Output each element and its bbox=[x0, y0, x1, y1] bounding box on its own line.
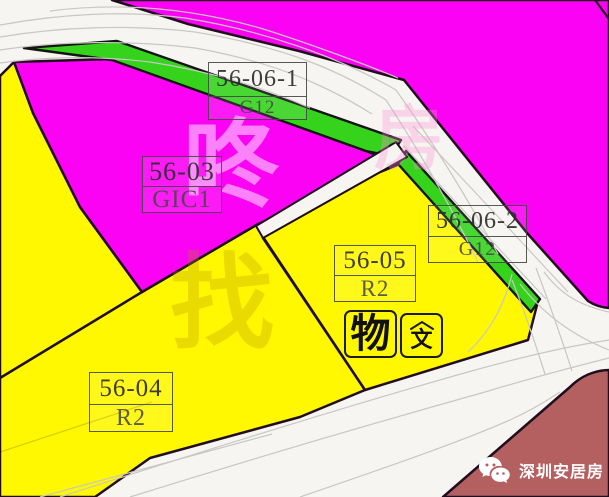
parcel-code: 56-04 bbox=[90, 373, 172, 405]
parcel-code: 56-05 bbox=[335, 246, 415, 276]
parcel-use: G12 bbox=[209, 97, 306, 119]
parcel-label-56-05: 56-05 R2 bbox=[334, 245, 416, 302]
brand-footer: 深圳安居房 bbox=[478, 452, 604, 488]
brand-name: 深圳安居房 bbox=[519, 458, 604, 482]
parcel-label-56-03: 56-03 GIC1 bbox=[142, 156, 222, 213]
parcel-use: R2 bbox=[335, 276, 415, 301]
parcel-code: 56-06-2 bbox=[429, 206, 526, 237]
parcel-code: 56-03 bbox=[143, 157, 221, 187]
landmark-wen-glyph: 文 bbox=[410, 329, 432, 351]
parcel-use: GIC1 bbox=[143, 187, 221, 212]
parcel-code: 56-06-1 bbox=[209, 63, 306, 97]
parcel-label-56-04: 56-04 R2 bbox=[89, 372, 173, 432]
landmark-wu-box: 物 bbox=[344, 310, 397, 358]
zoning-map: 咚 找 房 56-06-1 G12 56-03 GIC1 56-06-2 G12… bbox=[0, 0, 609, 497]
parcel-use: G12 bbox=[429, 237, 526, 262]
parcel-label-56-06-2: 56-06-2 G12 bbox=[428, 205, 527, 263]
parcel-use: R2 bbox=[90, 405, 172, 431]
wechat-icon bbox=[478, 456, 512, 484]
landmark-wu-glyph: 物 bbox=[351, 312, 391, 356]
parcel-label-56-06-1: 56-06-1 G12 bbox=[208, 62, 307, 120]
landmark-wen-box: 文 bbox=[400, 313, 443, 358]
